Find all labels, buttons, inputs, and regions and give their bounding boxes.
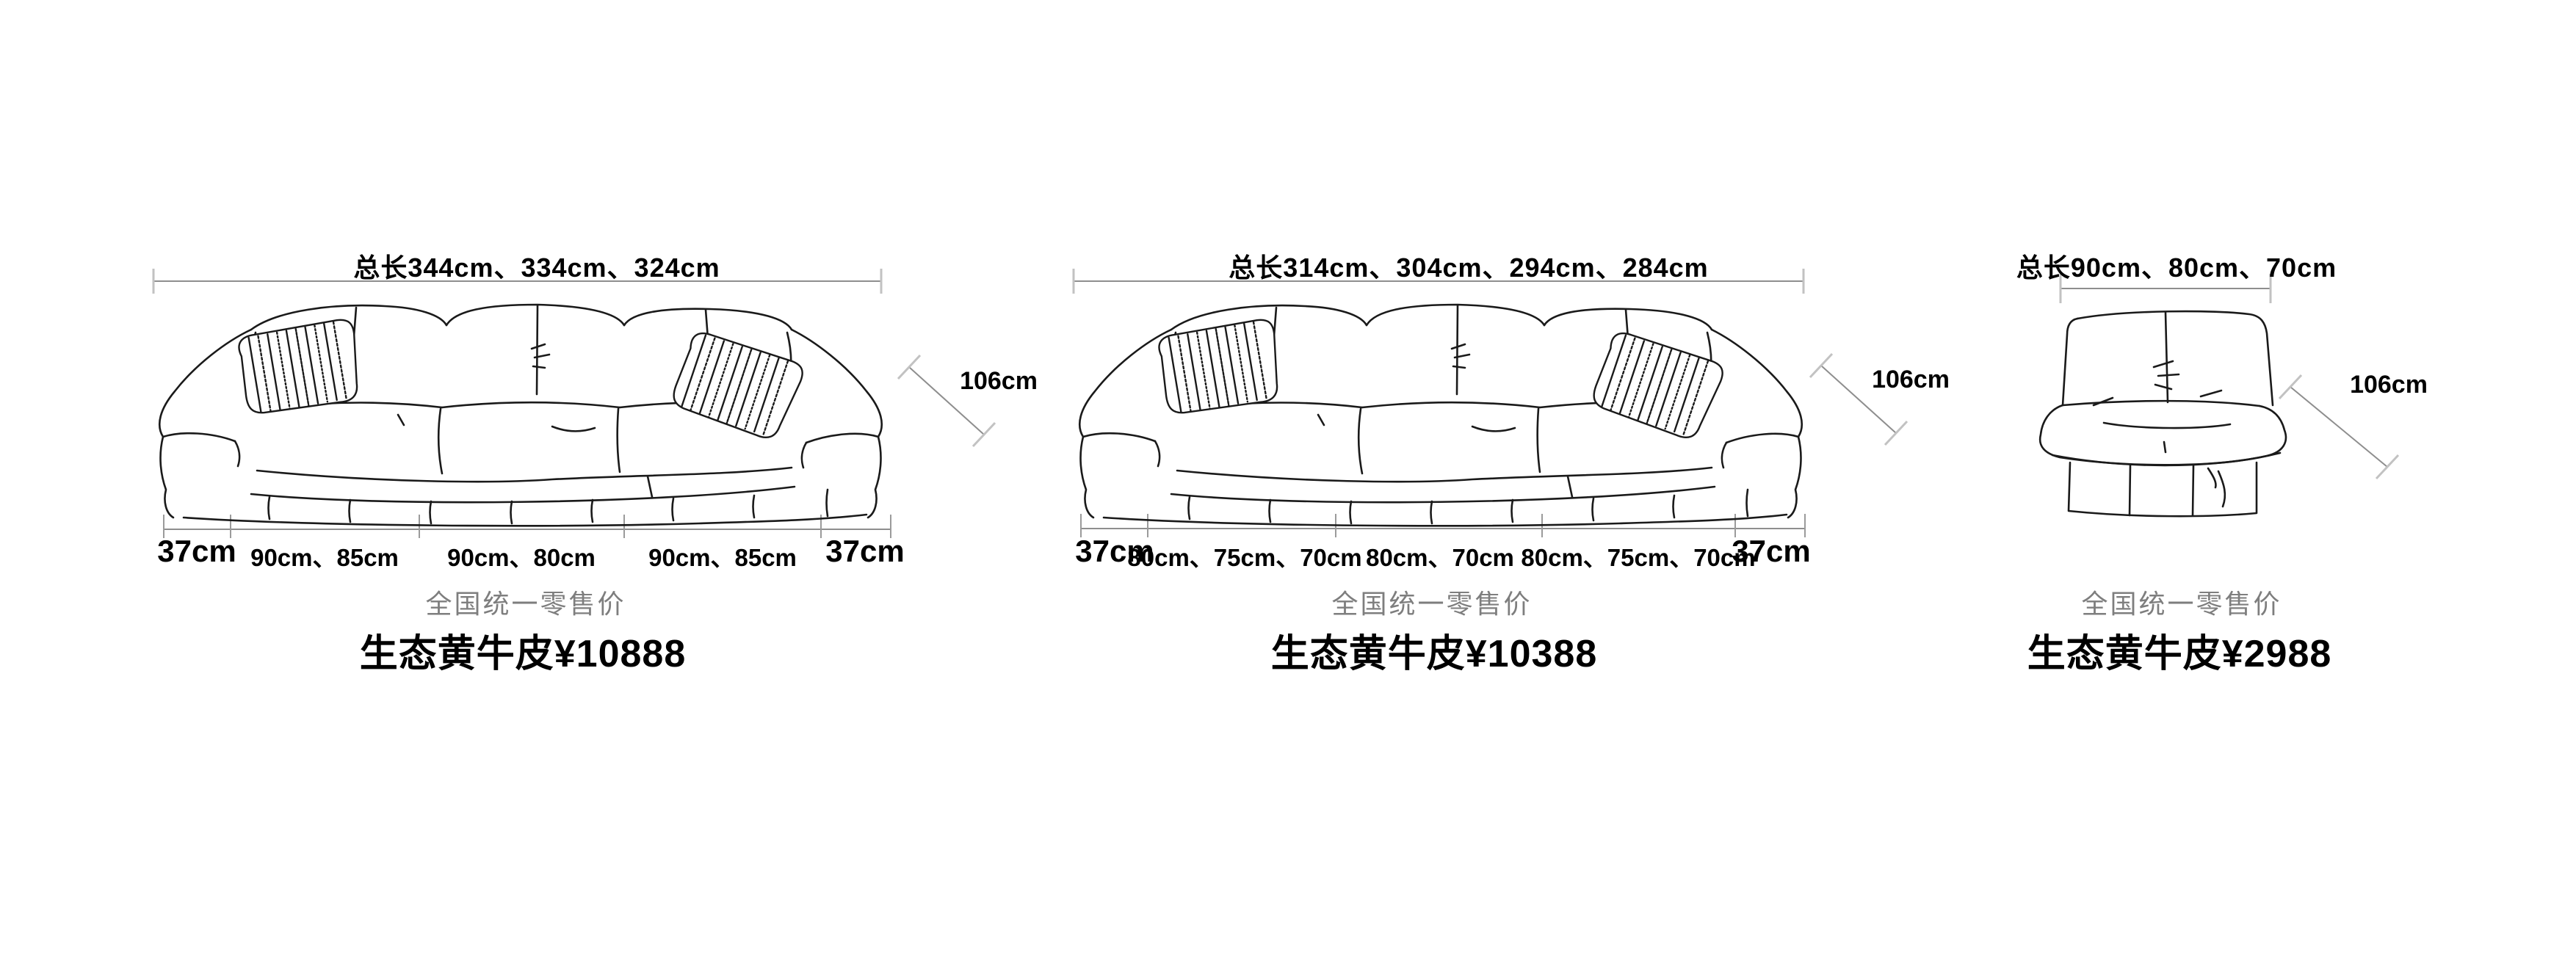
price-caption: 全国统一零售价 — [1331, 583, 1532, 621]
segment-label: 37cm — [1732, 534, 1810, 569]
chair-drawing — [2030, 302, 2298, 523]
price-label: 生态黄牛皮¥2988 — [2027, 623, 2332, 678]
price-caption: 全国统一零售价 — [425, 583, 626, 621]
sofa-drawing — [141, 297, 897, 529]
total-length-label: 总长90cm、80cm、70cm — [2016, 247, 2337, 285]
height-label: 106cm — [1872, 366, 1950, 394]
segment-label: 80cm、70cm — [1366, 538, 1514, 573]
segment-label: 37cm — [157, 534, 236, 569]
price-caption: 全国统一零售价 — [2081, 583, 2282, 621]
sofa-drawing — [1061, 297, 1817, 529]
price-label: 生态黄牛皮¥10888 — [360, 623, 687, 678]
segment-label: 90cm、85cm — [250, 538, 399, 573]
segment-label: 80cm、75cm、70cm — [1127, 538, 1361, 573]
segment-label: 37cm — [825, 534, 904, 569]
segment-label: 80cm、75cm、70cm — [1521, 538, 1755, 573]
height-label: 106cm — [960, 367, 1038, 396]
price-label: 生态黄牛皮¥10388 — [1271, 623, 1598, 678]
total-length-label: 总长344cm、334cm、324cm — [353, 247, 720, 285]
sofa-spec-sheet: 总长344cm、334cm、324cm 106cm 37cm 90cm、85cm… — [0, 0, 2576, 969]
total-length-label: 总长314cm、304cm、294cm、284cm — [1229, 247, 1708, 285]
segment-label: 90cm、85cm — [648, 538, 797, 573]
height-label: 106cm — [2350, 371, 2428, 399]
segment-label: 90cm、80cm — [447, 538, 596, 573]
